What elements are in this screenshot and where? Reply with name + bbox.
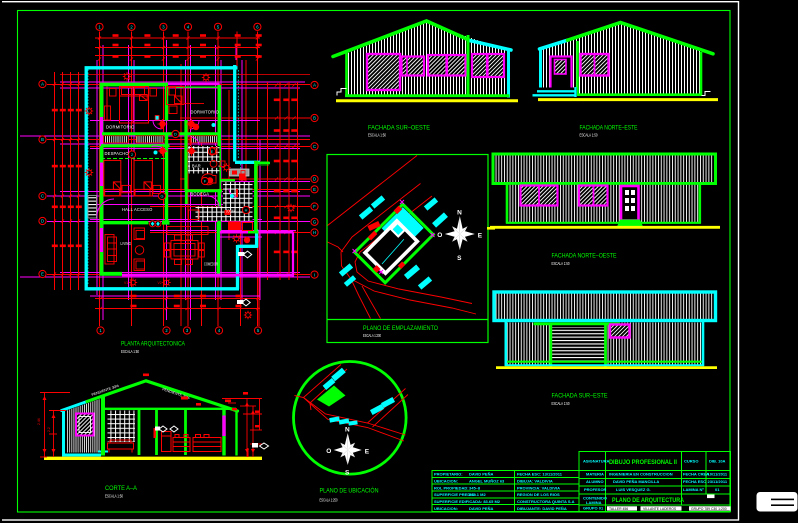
svg-text:2.2: 2.2 xyxy=(47,427,51,432)
svg-text:FACHADA NORTE–OESTE: FACHADA NORTE–OESTE xyxy=(552,253,617,260)
svg-text:F: F xyxy=(313,204,316,209)
svg-text:S: S xyxy=(457,255,462,262)
svg-text:E: E xyxy=(478,233,483,240)
svg-text:CONSTRUCTORA QUINTA S.A: CONSTRUCTORA QUINTA S.A xyxy=(517,499,575,504)
svg-text:O: O xyxy=(326,448,331,455)
svg-text:I: I xyxy=(314,272,315,277)
svg-text:LIVING: LIVING xyxy=(121,241,132,246)
svg-text:ALUMNO: ALUMNO xyxy=(586,479,604,484)
svg-text:DIBUJANTE: DAVID PEÑA: DIBUJANTE: DAVID PEÑA xyxy=(517,506,567,511)
svg-text:FACHADA SUR–ESTE: FACHADA SUR–ESTE xyxy=(552,393,608,400)
svg-text:C: C xyxy=(313,144,316,149)
svg-text:PROFESOR: PROFESOR xyxy=(584,487,607,492)
svg-text:G: G xyxy=(161,194,164,198)
svg-text:REGION DE LOS RIOS: REGION DE LOS RIOS xyxy=(517,492,560,497)
svg-text:S: S xyxy=(345,470,350,477)
svg-text:CURSO: CURSO xyxy=(684,459,698,464)
svg-text:COCINA: COCINA xyxy=(226,209,236,214)
svg-text:DIBUJA: VALDIVIA: DIBUJA: VALDIVIA xyxy=(517,479,553,484)
svg-text:C: C xyxy=(41,194,44,199)
svg-text:N: N xyxy=(345,427,350,434)
svg-text:V2: V2 xyxy=(158,281,162,285)
svg-text:PROVINCIA: VALDIVIA: PROVINCIA: VALDIVIA xyxy=(517,485,560,490)
svg-text:CORTE A–A: CORTE A–A xyxy=(105,485,138,492)
svg-text:PLANO DE UBICACIÓN: PLANO DE UBICACIÓN xyxy=(320,486,379,495)
svg-text:SUPERFICIE EDIFICADA: 83.65 M2: SUPERFICIE EDIFICADA: 83.65 M2 xyxy=(434,499,501,504)
svg-text:FECHA ESC: 13/11/2011: FECHA ESC: 13/11/2011 xyxy=(517,472,563,477)
svg-text:DAVID PEÑA: DAVID PEÑA xyxy=(469,472,493,477)
svg-text:ANGEL MUÑOZ 63: ANGEL MUÑOZ 63 xyxy=(469,479,505,484)
svg-text:DAVID PEÑA MANCILLA: DAVID PEÑA MANCILLA xyxy=(613,479,659,484)
svg-text:BAR: BAR xyxy=(192,163,201,168)
svg-text:E: E xyxy=(41,272,44,277)
svg-text:ROL PROPIEDAD:: ROL PROPIEDAD: xyxy=(434,485,469,490)
svg-text:LUIS VESQUEZ G.: LUIS VESQUEZ G. xyxy=(616,487,651,492)
svg-text:FACHADA SUR–OESTE: FACHADA SUR–OESTE xyxy=(368,125,430,132)
svg-text:B: B xyxy=(41,137,44,142)
svg-text:FECHA CREA: FECHA CREA xyxy=(683,471,709,476)
svg-text:DIBUJO PROFESIONAL II: DIBUJO PROFESIONAL II xyxy=(609,460,677,466)
svg-text:BODEGA: BODEGA xyxy=(191,191,210,196)
svg-text:UBICACION:: UBICACION: xyxy=(434,506,458,511)
svg-text:539.1 M2: 539.1 M2 xyxy=(469,492,486,497)
svg-text:INGENIERIA EN CONSTRUCCION: INGENIERIA EN CONSTRUCCION xyxy=(609,471,673,476)
svg-text:GRUPO 01: GRUPO 01 xyxy=(583,506,604,511)
svg-text:ASIGNATURA: ASIGNATURA xyxy=(583,459,609,464)
svg-text:D: D xyxy=(174,132,177,136)
svg-text:FECHA ESC: FECHA ESC xyxy=(683,479,706,484)
svg-text:FACHADA NORTE–ESTE: FACHADA NORTE–ESTE xyxy=(580,125,638,132)
svg-text:PROPIETARIO:: PROPIETARIO: xyxy=(434,472,463,477)
svg-text:G: G xyxy=(313,220,316,225)
svg-text:COMEDOR: COMEDOR xyxy=(204,262,218,267)
svg-text:N: N xyxy=(457,210,462,217)
svg-text:LAMINA Nº: LAMINA Nº xyxy=(683,487,704,492)
svg-text:HALL ACCESO: HALL ACCESO xyxy=(122,207,153,212)
svg-text:01: 01 xyxy=(715,487,720,492)
svg-text:23/11/2011: 23/11/2011 xyxy=(708,479,728,484)
svg-text:ESCALA 1:50: ESCALA 1:50 xyxy=(552,261,570,266)
svg-text:D: D xyxy=(313,177,316,182)
svg-text:MATERIA: MATERIA xyxy=(586,471,604,476)
svg-text:ESCALA 1:50: ESCALA 1:50 xyxy=(121,349,139,354)
svg-text:PLANO DE EMPLAZAMIENTO: PLANO DE EMPLAZAMIENTO xyxy=(363,325,438,332)
svg-text:E: E xyxy=(313,187,316,192)
svg-text:O: O xyxy=(437,232,442,239)
svg-text:E: E xyxy=(365,449,370,456)
svg-text:A: A xyxy=(41,82,44,87)
svg-text:E: E xyxy=(211,150,214,154)
svg-text:DAVID PEÑA: DAVID PEÑA xyxy=(469,506,493,511)
svg-text:ESCALA 1:50: ESCALA 1:50 xyxy=(552,401,570,406)
svg-text:ESCALA 1:200: ESCALA 1:200 xyxy=(363,333,381,338)
svg-text:A: A xyxy=(313,83,316,88)
svg-text:H: H xyxy=(245,208,248,212)
svg-text:ESCALA 1:250: ESCALA 1:250 xyxy=(320,498,338,503)
svg-text:H: H xyxy=(313,230,316,235)
svg-text:ESCALA 1:50: ESCALA 1:50 xyxy=(105,494,123,499)
svg-text:DESPACHO: DESPACHO xyxy=(105,151,129,156)
svg-text:V1: V1 xyxy=(124,281,128,285)
svg-text:VILLANTE LADEROS: VILLANTE LADEROS xyxy=(643,507,677,511)
svg-text:PLANTA ARQUITECTONICA: PLANTA ARQUITECTONICA xyxy=(121,341,186,348)
svg-text:345–8: 345–8 xyxy=(469,485,481,490)
svg-text:D: D xyxy=(41,219,44,224)
svg-text:ESCALA 1:50: ESCALA 1:50 xyxy=(580,133,598,138)
svg-text:10/11/2011: 10/11/2011 xyxy=(708,471,728,476)
svg-text:DORMITORIO: DORMITORIO xyxy=(106,125,135,130)
svg-text:PLANO DE ARQUITECTURA: PLANO DE ARQUITECTURA xyxy=(612,498,685,504)
svg-text:DIB. 10A: DIB. 10A xyxy=(709,459,726,464)
svg-text:B: B xyxy=(313,116,316,121)
svg-text:2: 2 xyxy=(131,153,133,157)
svg-text:TALLER 456: TALLER 456 xyxy=(609,507,628,511)
svg-text:UBICACION:: UBICACION: xyxy=(434,479,458,484)
svg-text:ESCALA 1:50: ESCALA 1:50 xyxy=(368,133,386,138)
svg-text:2.44: 2.44 xyxy=(37,418,41,425)
svg-text:LAMINA: LAMINA xyxy=(586,500,602,505)
svg-text:DORMITORIO: DORMITORIO xyxy=(191,109,220,114)
svg-text:GRUPO 789 C30 1:200: GRUPO 789 C30 1:200 xyxy=(691,507,727,511)
